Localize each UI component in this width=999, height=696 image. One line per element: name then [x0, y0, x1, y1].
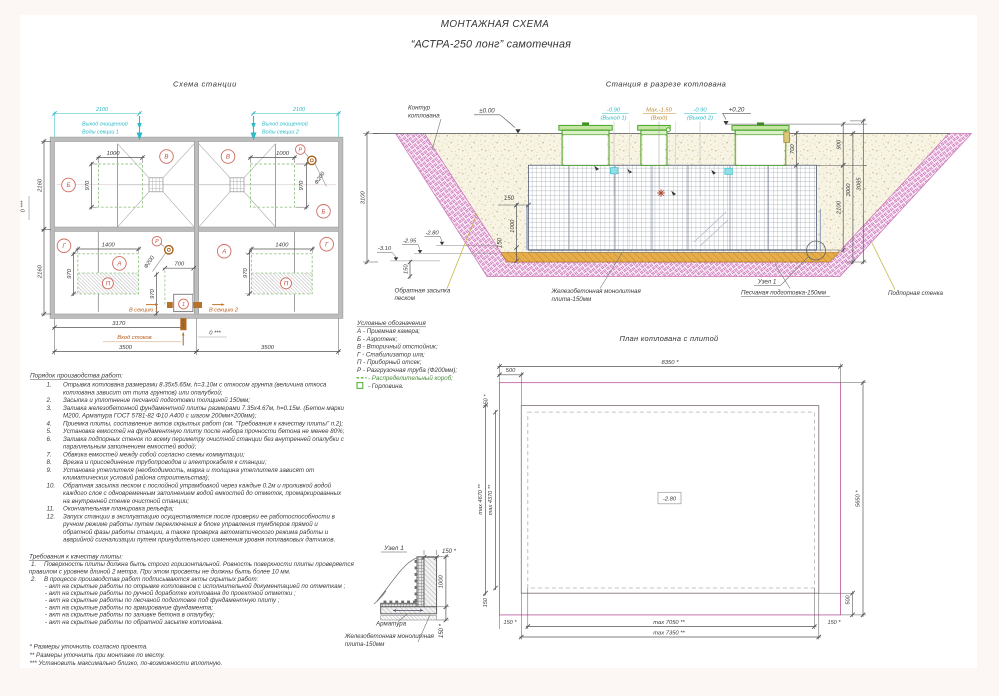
svg-text:** Размеры уточнить при монтаж: ** Размеры уточнить при монтаже по месту… [30, 652, 165, 659]
svg-text:970: 970 [85, 180, 91, 191]
svg-text:климатических условий района с: климатических условий района строительст… [63, 475, 210, 482]
svg-text:В: В [226, 154, 230, 161]
svg-text:970: 970 [299, 180, 305, 191]
svg-text:1: 1 [182, 302, 185, 308]
svg-text:Р: Р [155, 239, 159, 245]
svg-text:- Горловина.: - Горловина. [368, 383, 404, 390]
svg-text:Отрывка котлована размерами 8.: Отрывка котлована размерами 8.35х5.65м, … [63, 382, 327, 389]
svg-text:1000: 1000 [276, 151, 290, 157]
svg-text:М200, Арматура ГОСТ 5781-82 Ф1: М200, Арматура ГОСТ 5781-82 Ф10 А400 с ш… [63, 413, 257, 420]
svg-text:3000: 3000 [846, 183, 852, 197]
svg-text:В: В [164, 154, 168, 161]
svg-text:970: 970 [150, 288, 156, 299]
svg-text:150 *: 150 * [503, 620, 517, 626]
svg-text:5650 *: 5650 * [856, 490, 862, 508]
svg-text:В секцию 1: В секцию 1 [129, 307, 158, 313]
svg-text:2160: 2160 [38, 264, 44, 279]
svg-text:3.: 3. [47, 405, 52, 412]
svg-text:Обвязка емкостей между собой с: Обвязка емкостей между собой согласно сх… [63, 451, 245, 458]
svg-text:правилом с уровнем длиной 2 ме: правилом с уровнем длиной 2 метра. При э… [29, 569, 291, 576]
svg-text:150: 150 [504, 196, 515, 202]
svg-text:4.: 4. [47, 420, 52, 427]
svg-text:+0.20: +0.20 [729, 107, 745, 114]
svg-text:Обратная засыпка песком с посл: Обратная засыпка песком с послойной утра… [63, 482, 332, 489]
svg-text:900: 900 [837, 139, 843, 150]
svg-text:Заливка железобетонной фундаме: Заливка железобетонной фундаментной плит… [63, 405, 345, 412]
svg-text:Контур: Контур [408, 105, 431, 112]
svg-text:Требования к качеству плиты:: Требования к качеству плиты: [29, 553, 123, 561]
svg-text:6.: 6. [47, 436, 52, 443]
svg-text:Порядок производства работ:: Порядок производства работ: [30, 372, 123, 380]
svg-text:Б: Б [321, 209, 325, 216]
svg-text:Подпорная стенка: Подпорная стенка [888, 290, 944, 297]
svg-text:max 7350 **: max 7350 ** [653, 631, 685, 637]
svg-text:Выход очищенной: Выход очищенной [82, 121, 128, 128]
svg-text:9.: 9. [47, 467, 52, 474]
svg-text:- акт на скрытые работы по зал: - акт на скрытые работы по заливке бетон… [45, 612, 215, 619]
svg-text:Засыпка и уплотнение песчаной: Засыпка и уплотнение песчаной подготовки… [63, 397, 250, 404]
svg-text:Р - Разгрузочная труба (Ф200: Р - Разгрузочная труба (Ф200мм); [357, 367, 457, 374]
svg-text:970: 970 [67, 268, 73, 279]
svg-text:П: П [106, 281, 111, 288]
svg-text:- акт на скрытые работы по пес: - акт на скрытые работы по песчаной подг… [45, 597, 280, 604]
svg-text:- акт на скрытые работы по арм: - акт на скрытые работы по армирование ф… [45, 604, 213, 611]
svg-text:8.: 8. [47, 459, 52, 466]
svg-text:150 *: 150 * [439, 623, 445, 638]
svg-text:-0.90: -0.90 [693, 108, 707, 114]
svg-text:ручном режиме работы путем пер: ручном режиме работы путем переключения … [62, 521, 318, 528]
svg-text:плита-150мм: плита-150мм [552, 296, 592, 303]
svg-text:2100: 2100 [837, 200, 843, 215]
svg-text:150 *: 150 * [483, 593, 489, 607]
svg-text:План котлована с плитой: План котлована с плитой [620, 334, 719, 343]
svg-text:Г - Стабилизатор ила;: Г - Стабилизатор ила; [357, 351, 425, 358]
svg-text:(Выход 2): (Выход 2) [687, 116, 713, 122]
svg-text:3500: 3500 [119, 345, 133, 351]
svg-text:Обратная засыпка: Обратная засыпка [395, 288, 451, 295]
svg-text:В - Вторичный отстойник;: В - Вторичный отстойник; [357, 344, 438, 351]
svg-text:Железобетонная монолитная: Железобетонная монолитная [551, 288, 642, 295]
svg-text:3100: 3100 [361, 190, 367, 204]
svg-text:- акт на скрытые работы по руч: - акт на скрытые работы по ручной дорабо… [45, 590, 296, 597]
svg-text:(Выход 1): (Выход 1) [600, 116, 626, 122]
svg-text:Окончательная планировка релье: Окончательная планировка рельефа; [63, 506, 174, 513]
svg-text:2100: 2100 [95, 107, 108, 113]
svg-text:970: 970 [243, 267, 249, 278]
svg-text:- Распределительный короб;: - Распределительный короб; [368, 375, 453, 382]
svg-text:каждого слоя с одновременным з: каждого слоя с одновременным заполнением… [63, 490, 342, 497]
svg-text:1000: 1000 [510, 219, 516, 233]
svg-text:Выход очищенной: Выход очищенной [262, 121, 308, 128]
svg-text:0 ***: 0 *** [209, 331, 221, 337]
svg-text:Приемка плиты, составление акт: Приемка плиты, составление актов скрытых… [63, 420, 343, 427]
svg-text:Р: Р [298, 147, 302, 153]
svg-text:- акт на скрытые работы по отр: - акт на скрытые работы по отрывке котло… [45, 583, 346, 590]
svg-text:В секцию 2: В секцию 2 [209, 307, 239, 313]
svg-text:700: 700 [790, 144, 796, 155]
svg-text:700: 700 [174, 262, 185, 268]
svg-text:150 *: 150 * [827, 620, 841, 626]
svg-text:Схема станции: Схема станции [173, 80, 237, 89]
svg-text:- акт на скрытые работы по обр: - акт на скрытые работы по обратной засы… [45, 619, 223, 626]
svg-text:котлована зависит от типа грун: котлована зависит от типа грунтов) или о… [63, 389, 223, 396]
svg-text:3170: 3170 [112, 321, 126, 327]
svg-text:-2.95: -2.95 [403, 238, 417, 244]
svg-text:Установка утеплителя (необходи: Установка утеплителя (необходимость, мар… [62, 467, 314, 474]
svg-text:(Вход): (Вход) [651, 116, 668, 122]
svg-text:3085: 3085 [856, 177, 862, 191]
svg-text:Поверхность плиты должна быть: Поверхность плиты должна быть строго гор… [44, 561, 354, 568]
svg-text:Б: Б [66, 182, 70, 189]
svg-text:8350 *: 8350 * [661, 360, 679, 366]
svg-text:песком: песком [395, 295, 416, 302]
svg-text:2.: 2. [30, 576, 36, 583]
svg-text:Воды секции 1: Воды секции 1 [82, 130, 119, 136]
svg-text:Условные обозначения: Условные обозначения [356, 319, 426, 327]
svg-text:МОНТАЖНАЯ СХЕМА: МОНТАЖНАЯ СХЕМА [441, 19, 549, 30]
svg-text:Запуск станции в эксплуатацию: Запуск станции в эксплуатацию осуществля… [63, 513, 336, 520]
svg-text:max 4370 **: max 4370 ** [488, 484, 494, 515]
svg-text:500: 500 [846, 594, 852, 604]
svg-text:1.: 1. [47, 382, 52, 389]
svg-text:Узел 1: Узел 1 [757, 279, 777, 286]
svg-text:2160: 2160 [38, 178, 44, 193]
svg-text:П - Приборный отсек;: П - Приборный отсек; [357, 359, 422, 366]
svg-text:1400: 1400 [275, 243, 289, 249]
svg-text:котлована: котлована [408, 113, 440, 120]
svg-text:±0.00: ±0.00 [479, 108, 495, 115]
svg-text:2.: 2. [46, 397, 52, 404]
svg-text:1000: 1000 [106, 151, 120, 157]
svg-text:150 *: 150 * [442, 549, 457, 555]
svg-text:1400: 1400 [102, 243, 116, 249]
svg-text:“АСТРА-250 лонг” самотечная: “АСТРА-250 лонг” самотечная [411, 39, 571, 51]
svg-text:150 *: 150 * [484, 394, 490, 408]
svg-text:10.: 10. [47, 482, 56, 489]
svg-text:Max.-1.50: Max.-1.50 [646, 108, 673, 114]
svg-text:Б - Аэротенк;: Б - Аэротенк; [357, 336, 397, 343]
svg-text:500: 500 [506, 368, 516, 374]
svg-text:1.: 1. [31, 561, 36, 568]
svg-text:max 4670 **: max 4670 ** [478, 483, 484, 514]
svg-text:2100: 2100 [292, 107, 305, 113]
svg-text:Станция в разрезе котлована: Станция в разрезе котлована [606, 80, 727, 89]
svg-text:Вход стоков: Вход стоков [117, 335, 151, 341]
svg-text:плита-150мм: плита-150мм [345, 641, 385, 648]
svg-text:Заливка подпорных стенок по вс: Заливка подпорных стенок по всему периме… [63, 436, 345, 443]
svg-text:0 ***: 0 *** [21, 200, 27, 212]
svg-text:Железобетонная монолитная: Железобетонная монолитная [344, 633, 435, 640]
svg-text:Песчаная подготовка-150мм: Песчаная подготовка-150мм [741, 290, 827, 297]
svg-text:11.: 11. [47, 506, 55, 513]
svg-text:3500: 3500 [261, 345, 275, 351]
svg-text:5.: 5. [47, 428, 52, 435]
svg-text:max 7050 **: max 7050 ** [653, 620, 685, 626]
svg-text:*** Установить максимально бли: *** Установить максимально близко, по-во… [30, 660, 223, 667]
svg-text:1000: 1000 [439, 575, 445, 589]
svg-text:Установка емкостей на фундамен: Установка емкостей на фундаментную плиту… [62, 428, 345, 435]
svg-text:-2.80: -2.80 [425, 230, 439, 236]
svg-text:А: А [221, 249, 226, 256]
svg-text:Воды секции 2: Воды секции 2 [262, 130, 299, 136]
svg-text:Арматура: Арматура [375, 621, 407, 628]
svg-text:-2.80: -2.80 [663, 496, 677, 502]
svg-text:12.: 12. [47, 513, 56, 520]
svg-text:-0.90: -0.90 [607, 108, 621, 114]
svg-text:аварийной сигнализации путем п: аварийной сигнализации путем принудитель… [63, 537, 335, 544]
svg-text:А - Приемная камера;: А - Приемная камера; [356, 328, 420, 335]
svg-text:П: П [284, 281, 289, 288]
svg-text:параллельным заполнением емкос: параллельным заполнением емкостей водой; [63, 444, 197, 451]
svg-text:-3.10: -3.10 [378, 246, 392, 252]
svg-text:* Размеры уточнить согласно пр: * Размеры уточнить согласно проекта. [30, 644, 148, 651]
svg-text:на внутренней стенке очистной: на внутренней стенке очистной станции; [63, 498, 189, 505]
svg-text:7.: 7. [47, 451, 52, 458]
svg-text:150: 150 [498, 237, 504, 248]
svg-text:Врезка и присоединение трубопр: Врезка и присоединение трубопроводов и э… [63, 459, 267, 466]
svg-text:А: А [116, 261, 121, 268]
svg-text:150: 150 [404, 264, 410, 275]
svg-text:обратной фазы работы станции,: обратной фазы работы станции, а также пр… [63, 529, 329, 536]
svg-text:Узел 1: Узел 1 [383, 545, 404, 552]
